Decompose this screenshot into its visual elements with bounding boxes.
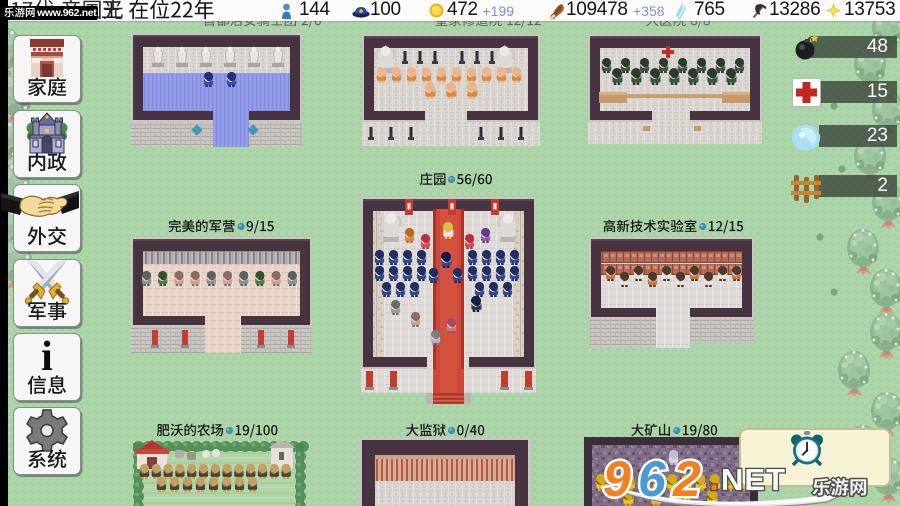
svg-text:6: 6 [638, 451, 668, 506]
svg-text:.: . [709, 457, 719, 498]
svg-text:2: 2 [672, 451, 703, 506]
svg-text:NET: NET [721, 462, 786, 497]
svg-text:9: 9 [603, 451, 633, 506]
svg-text:i: i [41, 336, 53, 376]
